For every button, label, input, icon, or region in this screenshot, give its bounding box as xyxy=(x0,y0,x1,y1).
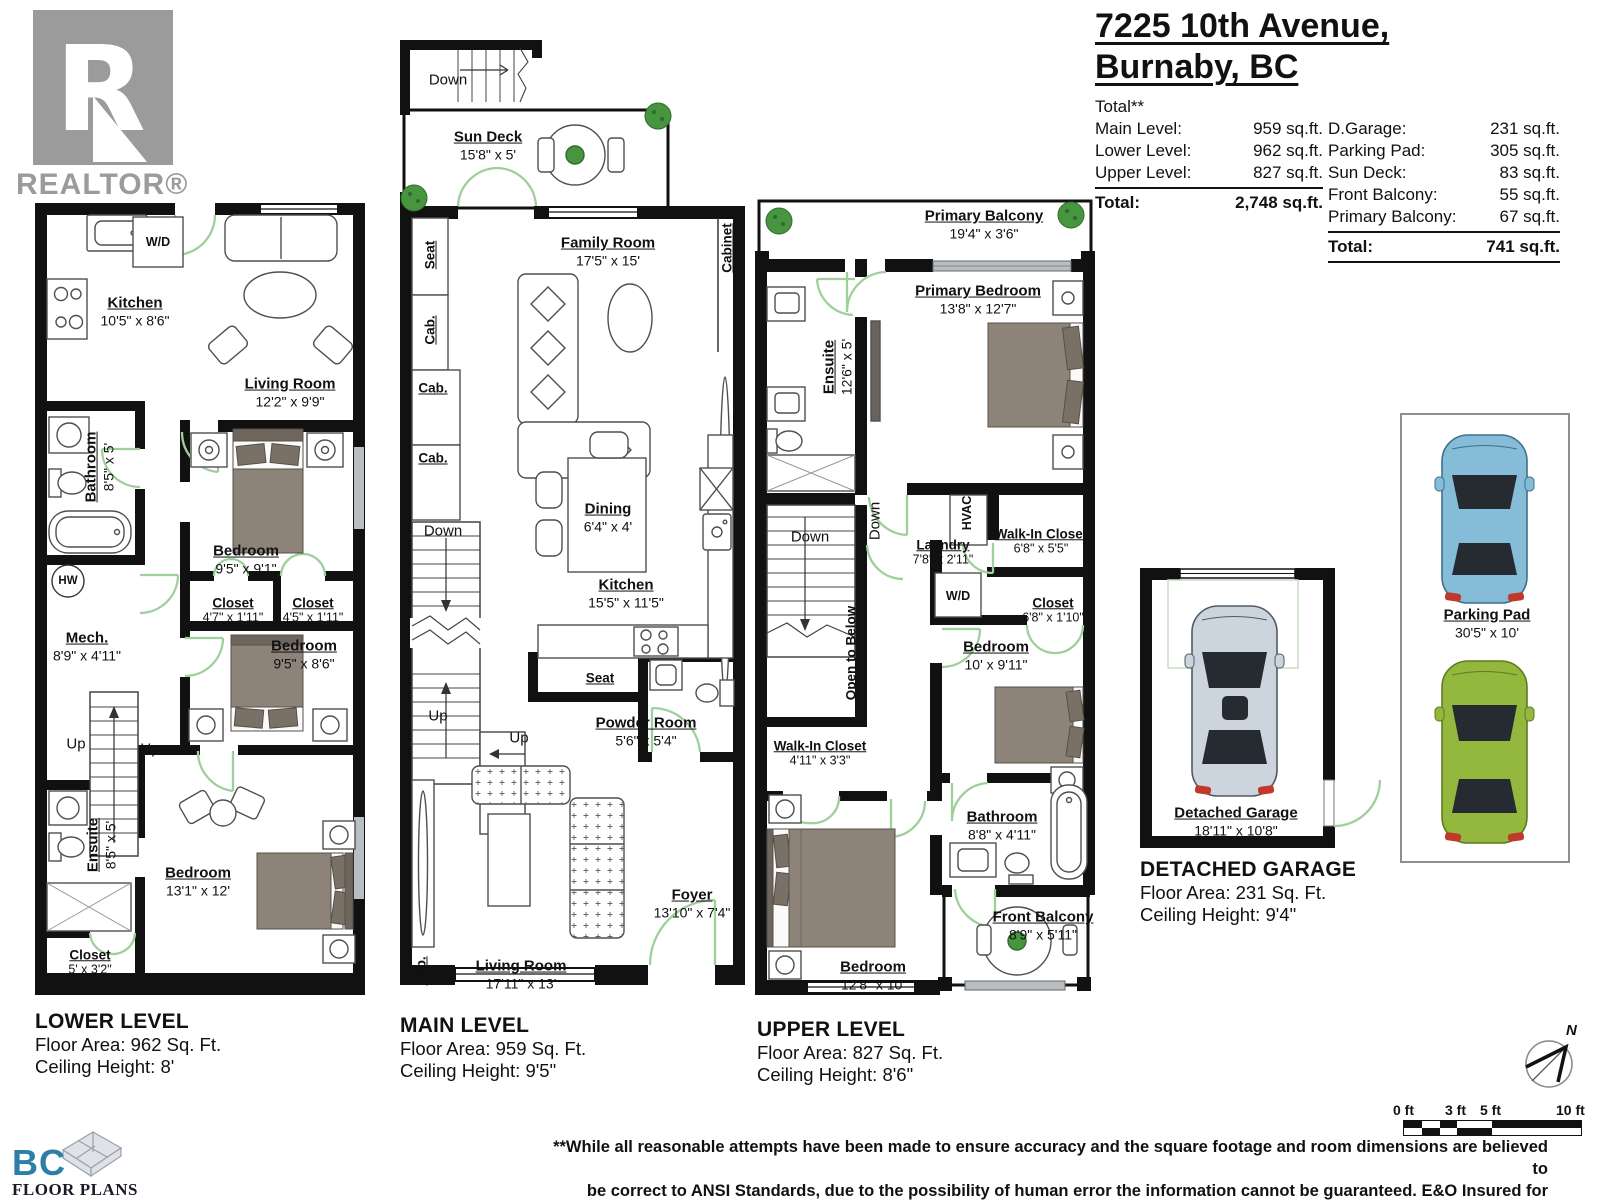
room-label-lower-bedroom2: Bedroom 9'5" x 8'6" xyxy=(271,639,337,672)
bc-logo-text: BC xyxy=(12,1142,66,1184)
summary-label: D.Garage: xyxy=(1328,118,1406,140)
room-dims: 8'9" x 5'11" xyxy=(993,926,1094,942)
summary-label: Parking Pad: xyxy=(1328,140,1425,162)
room-name: Bedroom xyxy=(213,544,279,561)
room-dims: 4'11" x 3'3" xyxy=(774,753,867,767)
room-label-parking-pad: Parking Pad 30'5" x 10' xyxy=(1444,608,1531,641)
nightstand-icon xyxy=(313,709,347,741)
bed-icon xyxy=(995,687,1084,763)
room-dims: 30'5" x 10' xyxy=(1444,624,1531,640)
room-name: Powder Room xyxy=(596,716,697,733)
up-label: Up xyxy=(428,708,447,725)
stove-icon xyxy=(634,627,678,656)
room-label-lower-kitchen: Kitchen 10'5" x 8'6" xyxy=(101,296,170,329)
cabinet-label: Cab. xyxy=(423,315,438,344)
room-dims: 12'2" x 9'9" xyxy=(245,393,336,409)
caption-name: DETACHED GARAGE xyxy=(1140,858,1356,882)
room-label-lower-closet2: Closet 4'5" x 1'11" xyxy=(283,595,344,624)
summary-row: Lower Level:962 sq.ft. xyxy=(1095,140,1323,162)
summary-right-column: D.Garage:231 sq.ft. Parking Pad:305 sq.f… xyxy=(1328,118,1560,266)
sofa-icon xyxy=(570,798,624,938)
page-title: 7225 10th Avenue, Burnaby, BC xyxy=(1095,6,1389,89)
room-dims: 4'7" x 1'11" xyxy=(203,610,264,624)
caption-area: Floor Area: 231 Sq. Ft. xyxy=(1140,882,1356,904)
summary-divider xyxy=(1328,231,1560,233)
room-name: Primary Balcony xyxy=(925,209,1043,226)
room-label-upper-front-balcony: Front Balcony 8'9" x 5'11" xyxy=(993,910,1094,943)
room-label-upper-ensuite: Ensuite 12'6" x 5' xyxy=(822,339,855,395)
disclaimer-line2: be correct to ANSI Standards, due to the… xyxy=(540,1180,1548,1200)
nightstand-icon xyxy=(323,821,355,849)
summary-label: Sun Deck: xyxy=(1328,162,1406,184)
sofa-icon xyxy=(225,215,337,261)
caption-garage: DETACHED GARAGE Floor Area: 231 Sq. Ft. … xyxy=(1140,858,1356,926)
room-label-upper-primary: Primary Bedroom 13'8" x 12'7" xyxy=(915,284,1041,317)
caption-area: Floor Area: 827 Sq. Ft. xyxy=(757,1042,943,1064)
room-name: Ensuite xyxy=(86,818,103,872)
nightstand-icon xyxy=(307,433,343,467)
summary-total-row: Total:741 sq.ft. xyxy=(1328,236,1560,258)
down-label: Down xyxy=(867,502,884,540)
bed-icon xyxy=(988,323,1083,427)
disclaimer-line1: **While all reasonable attempts have bee… xyxy=(540,1136,1548,1180)
stove-icon xyxy=(47,279,87,339)
room-name: Front Balcony xyxy=(993,910,1094,927)
summary-total-value: 2,748 sq.ft. xyxy=(1235,192,1323,214)
realtor-logo-icon: R xyxy=(33,10,173,168)
summary-label: Front Balcony: xyxy=(1328,184,1438,206)
summary-total-value: 741 sq.ft. xyxy=(1486,236,1560,258)
summary-row: Main Level:959 sq.ft. xyxy=(1095,118,1323,140)
room-label-lower-closet3: Closet 5' x 3'2" xyxy=(68,947,111,976)
summary-row: Sun Deck:83 sq.ft. xyxy=(1328,162,1560,184)
window xyxy=(354,447,364,529)
car-icon xyxy=(1185,606,1284,796)
caption-ceiling: Ceiling Height: 8'6" xyxy=(757,1064,943,1086)
room-label-upper-closet: Closet 6'8" x 1'10" xyxy=(1022,595,1084,624)
car-icon xyxy=(1435,661,1534,843)
room-dims: 6'4" x 4' xyxy=(584,518,632,534)
room-dims: 9'5" x 9'1" xyxy=(213,560,279,576)
nightstand-icon xyxy=(323,935,355,963)
summary-row: Upper Level:827 sq.ft. xyxy=(1095,162,1323,184)
powder-sink-icon xyxy=(650,660,682,690)
up-label: Up xyxy=(509,730,528,747)
room-name: Bedroom xyxy=(963,640,1029,657)
room-name: Dining xyxy=(584,502,632,519)
room-name: Living Room xyxy=(476,959,567,976)
table-icon xyxy=(244,272,316,318)
chair-icon xyxy=(207,324,250,366)
room-label-upper-balcony: Primary Balcony 19'4" x 3'6" xyxy=(925,209,1043,242)
summary-value: 231 sq.ft. xyxy=(1490,118,1560,140)
room-name: Closet xyxy=(203,595,264,610)
caption-upper-level: UPPER LEVEL Floor Area: 827 Sq. Ft. Ceil… xyxy=(757,1018,943,1086)
chairs-table-icon xyxy=(178,786,266,826)
caption-name: LOWER LEVEL xyxy=(35,1010,221,1034)
room-label-upper-wic2: Walk-In Closet 4'11" x 3'3" xyxy=(774,738,867,767)
room-dims: 10' x 9'11" xyxy=(963,656,1029,672)
main-level-floorplan xyxy=(400,40,745,995)
summary-row: Parking Pad:305 sq.ft. xyxy=(1328,140,1560,162)
compass-icon xyxy=(1505,1018,1591,1098)
room-dims: 12'6" x 5' xyxy=(838,339,854,395)
room-dims: 5'6" x 5'4" xyxy=(596,732,697,748)
room-dims: 13'10" x 7'4" xyxy=(654,904,731,920)
room-label-upper-bathroom: Bathroom 8'8" x 4'11" xyxy=(967,810,1038,843)
room-dims: 7'8" x 2'11" xyxy=(913,552,974,566)
room-dims: 19'4" x 3'6" xyxy=(925,225,1043,241)
room-name: Sun Deck xyxy=(454,130,522,147)
scale-label: 3 ft xyxy=(1445,1102,1466,1118)
kitchen-counter xyxy=(538,625,708,658)
room-name: Foyer xyxy=(654,888,731,905)
room-dims: 18'11" x 10'8" xyxy=(1174,822,1297,838)
cabinet-label: Cab. xyxy=(418,381,447,396)
summary-total-row: Total:2,748 sq.ft. xyxy=(1095,192,1323,214)
down-label: Down xyxy=(424,523,462,540)
room-label-main-dining: Dining 6'4" x 4' xyxy=(584,502,632,535)
caption-lower-level: LOWER LEVEL Floor Area: 962 Sq. Ft. Ceil… xyxy=(35,1010,221,1078)
room-label-main-kitchen: Kitchen 15'5" x 11'5" xyxy=(588,578,664,611)
title-line2: Burnaby, BC xyxy=(1095,47,1298,88)
scale-bar-graphic xyxy=(1403,1120,1582,1136)
caption-ceiling: Ceiling Height: 8' xyxy=(35,1056,221,1078)
cabinet-label: Cabinet xyxy=(720,223,735,273)
summary-value: 83 sq.ft. xyxy=(1500,162,1560,184)
summary-divider xyxy=(1095,187,1323,189)
seat-label: Seat xyxy=(586,671,615,686)
room-dims: 13'1" x 12' xyxy=(165,882,231,898)
down-label: Down xyxy=(791,529,829,546)
room-dims: 15'8" x 5' xyxy=(454,146,522,162)
room-name: Closet xyxy=(1022,595,1084,610)
room-name: Bedroom xyxy=(840,960,906,977)
summary-label: Lower Level: xyxy=(1095,140,1191,162)
room-label-upper-wic1: Walk-In Closet 6'8" x 5'5" xyxy=(995,526,1088,555)
fridge-icon xyxy=(700,468,733,510)
nightstand-icon xyxy=(1053,435,1083,469)
door-leaf xyxy=(1324,780,1334,826)
summary-value: 962 sq.ft. xyxy=(1253,140,1323,162)
room-label-upper-laundry: Laundry 7'8" x 2'11" xyxy=(913,537,974,566)
room-name: Laundry xyxy=(913,537,974,552)
summary-heading: Total** xyxy=(1095,96,1323,118)
room-dims: 12'8" x 10' xyxy=(840,976,906,992)
room-name: Bathroom xyxy=(967,810,1038,827)
room-label-upper-bedroom1: Bedroom 10' x 9'11" xyxy=(963,640,1029,673)
title-line1: 7225 10th Avenue, xyxy=(1095,6,1389,47)
compass-north-label: N xyxy=(1566,1022,1577,1039)
washer-dryer-label: W/D xyxy=(146,235,170,249)
room-label-lower-bedroom3: Bedroom 13'1" x 12' xyxy=(165,866,231,899)
room-dims: 6'8" x 1'10" xyxy=(1022,610,1084,624)
summary-value: 55 sq.ft. xyxy=(1500,184,1560,206)
summary-value: 67 sq.ft. xyxy=(1500,206,1560,228)
scale-label: 10 ft xyxy=(1556,1102,1585,1118)
room-name: Bedroom xyxy=(271,639,337,656)
summary-value: 305 sq.ft. xyxy=(1490,140,1560,162)
coffee-table-icon xyxy=(488,814,530,906)
room-dims: 10'5" x 8'6" xyxy=(101,312,170,328)
room-label-main-powder: Powder Room 5'6" x 5'4" xyxy=(596,716,697,749)
disclaimer: **While all reasonable attempts have bee… xyxy=(540,1136,1548,1200)
summary-row: Primary Balcony:67 sq.ft. xyxy=(1328,206,1560,228)
room-label-lower-mech: Mech. 8'9" x 4'11" xyxy=(53,631,121,664)
room-label-lower-closet1: Closet 4'7" x 1'11" xyxy=(203,595,264,624)
caption-ceiling: Ceiling Height: 9'5" xyxy=(400,1060,586,1082)
plant-icon xyxy=(1058,202,1084,228)
summary-label: Upper Level: xyxy=(1095,162,1191,184)
summary-divider xyxy=(1328,261,1560,263)
dresser-icon xyxy=(871,321,880,421)
caption-area: Floor Area: 959 Sq. Ft. xyxy=(400,1038,586,1060)
room-name: Family Room xyxy=(561,236,655,253)
plant-icon xyxy=(401,185,427,211)
room-name: Kitchen xyxy=(101,296,170,313)
door-arc xyxy=(1334,780,1380,826)
room-name: Mech. xyxy=(53,631,121,648)
room-dims: 8'9" x 4'11" xyxy=(53,647,121,663)
window xyxy=(965,981,1065,990)
oval-table-icon xyxy=(608,284,652,352)
room-dims: 8'5" x 5' xyxy=(102,818,118,872)
summary-row: D.Garage:231 sq.ft. xyxy=(1328,118,1560,140)
cabinet-label: Cab. xyxy=(418,451,447,466)
bed-icon xyxy=(767,829,895,947)
room-label-lower-living: Living Room 12'2" x 9'9" xyxy=(245,377,336,410)
bc-logo-subtext: FLOOR PLANS xyxy=(12,1180,138,1200)
tall-cabinet-icon xyxy=(412,780,434,947)
summary-total-label: Total: xyxy=(1328,236,1373,258)
nightstand-icon xyxy=(191,433,227,467)
room-dims: 17'11" x 13' xyxy=(476,975,567,991)
room-label-main-sundeck: Sun Deck 15'8" x 5' xyxy=(454,130,522,163)
car-icon xyxy=(1435,435,1534,603)
room-dims: 9'5" x 8'6" xyxy=(271,655,337,671)
nightstand-icon xyxy=(189,709,223,741)
room-name: Walk-In Closet xyxy=(774,738,867,753)
plant-icon xyxy=(766,208,792,234)
chair-icon xyxy=(312,324,355,366)
caption-name: MAIN LEVEL xyxy=(400,1014,586,1038)
up-label: Up xyxy=(140,741,159,758)
stairs-icon xyxy=(458,48,528,102)
summary-row: Front Balcony:55 sq.ft. xyxy=(1328,184,1560,206)
loveseat-icon xyxy=(472,766,570,804)
room-dims: 5' x 3'2" xyxy=(68,962,111,976)
hvac-label: HVAC xyxy=(960,496,974,531)
room-name: Bathroom xyxy=(84,432,101,503)
nightstand-icon xyxy=(769,795,801,823)
washer-dryer-label: W/D xyxy=(946,589,970,603)
room-name: Living Room xyxy=(245,377,336,394)
room-name: Ensuite xyxy=(822,339,839,395)
room-name: Detached Garage xyxy=(1174,806,1297,823)
room-name: Closet xyxy=(283,595,344,610)
summary-label: Primary Balcony: xyxy=(1328,206,1456,228)
room-dims: 6'8" x 5'5" xyxy=(995,541,1088,555)
room-name: Parking Pad xyxy=(1444,608,1531,625)
bed-icon xyxy=(257,853,353,929)
caption-area: Floor Area: 962 Sq. Ft. xyxy=(35,1034,221,1056)
room-label-main-living: Living Room 17'11" x 13' xyxy=(476,959,567,992)
deck-table-icon xyxy=(538,125,624,185)
down-label: Down xyxy=(429,72,467,89)
summary-value: 827 sq.ft. xyxy=(1253,162,1323,184)
scale-bar: 0 ft 3 ft 5 ft 10 ft xyxy=(1388,1102,1598,1140)
up-label: Up xyxy=(66,736,85,753)
room-label-main-foyer: Foyer 13'10" x 7'4" xyxy=(654,888,731,921)
nightstand-icon xyxy=(769,951,801,979)
cabinet-label: Cab. xyxy=(414,956,429,985)
room-name: Bedroom xyxy=(165,866,231,883)
nightstand-icon xyxy=(1053,281,1083,315)
room-label-main-family: Family Room 17'5" x 15' xyxy=(561,236,655,269)
room-label-lower-ensuite: Ensuite 8'5" x 5' xyxy=(86,818,119,872)
summary-left-column: Total** Main Level:959 sq.ft. Lower Leve… xyxy=(1095,96,1323,214)
open-to-below-label: Open to Below xyxy=(844,606,859,701)
scale-label: 5 ft xyxy=(1480,1102,1501,1118)
summary-value: 959 sq.ft. xyxy=(1253,118,1323,140)
room-label-upper-bedroom2: Bedroom 12'8" x 10' xyxy=(840,960,906,993)
caption-ceiling: Ceiling Height: 9'4" xyxy=(1140,904,1356,926)
kitchen-sink-icon xyxy=(703,514,731,550)
summary-total-label: Total: xyxy=(1095,192,1140,214)
summary-label: Main Level: xyxy=(1095,118,1182,140)
room-label-lower-bathroom: Bathroom 8'5" x 5' xyxy=(84,432,117,503)
room-dims: 15'5" x 11'5" xyxy=(588,594,664,610)
floorplan-sheet: R REALTOR® 7225 10th Avenue, Burnaby, BC… xyxy=(0,0,1600,1200)
room-dims: 8'5" x 5' xyxy=(100,432,116,503)
room-name: Walk-In Closet xyxy=(995,526,1088,541)
hot-water-label: HW xyxy=(58,575,77,587)
toilet-icon xyxy=(696,680,734,706)
room-name: Kitchen xyxy=(588,578,664,595)
sun-deck-rail xyxy=(404,110,668,208)
caption-main-level: MAIN LEVEL Floor Area: 959 Sq. Ft. Ceili… xyxy=(400,1014,586,1082)
room-label-lower-bedroom1: Bedroom 9'5" x 9'1" xyxy=(213,544,279,577)
scale-label: 0 ft xyxy=(1393,1102,1414,1118)
bed-icon xyxy=(233,429,303,553)
room-dims: 8'8" x 4'11" xyxy=(967,826,1038,842)
room-dims: 13'8" x 12'7" xyxy=(915,300,1041,316)
room-name: Primary Bedroom xyxy=(915,284,1041,301)
room-name: Closet xyxy=(68,947,111,962)
room-dims: 17'5" x 15' xyxy=(561,252,655,268)
caption-name: UPPER LEVEL xyxy=(757,1018,943,1042)
plant-icon xyxy=(645,103,671,129)
room-dims: 4'5" x 1'11" xyxy=(283,610,344,624)
room-label-garage: Detached Garage 18'11" x 10'8" xyxy=(1174,806,1297,839)
seat-label: Seat xyxy=(423,241,438,270)
